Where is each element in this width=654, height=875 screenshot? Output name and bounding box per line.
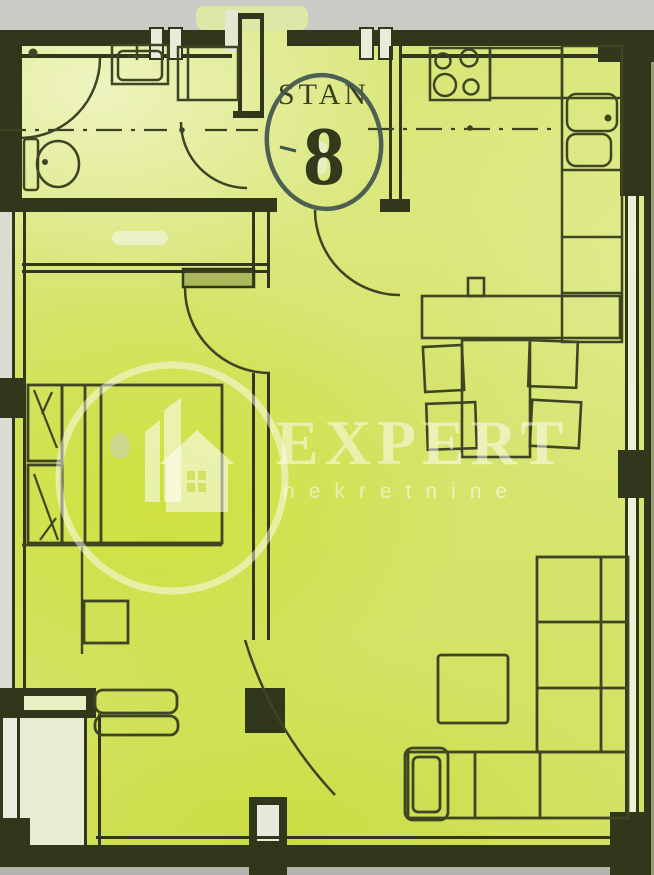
floor-plan-photo: STAN 8 EXPERT nekretnine xyxy=(0,0,654,875)
floor-plan-drawing: STAN 8 EXPERT nekretnine xyxy=(0,0,654,875)
wall-left-pier xyxy=(0,378,26,418)
smudge xyxy=(110,433,130,459)
scan-margin-left xyxy=(0,212,13,690)
coffee-table xyxy=(438,655,508,723)
sideboard xyxy=(422,296,620,338)
toilet-flush-dot xyxy=(42,159,48,165)
watermark-tagline: nekretnine xyxy=(283,480,521,503)
kitchen xyxy=(430,46,622,342)
watermark: EXPERT nekretnine xyxy=(59,365,569,591)
house-body-icon xyxy=(166,464,228,512)
nightstand xyxy=(28,385,62,461)
bedroom-living-wall xyxy=(252,373,255,640)
burner-icon xyxy=(464,80,479,95)
radiator-sill xyxy=(95,690,177,713)
bathroom-door-swing xyxy=(181,122,247,188)
wall-top-left-inner-face xyxy=(8,54,232,58)
chair-icon xyxy=(528,340,578,388)
pen-tick xyxy=(280,147,296,151)
top-opening xyxy=(225,10,238,52)
sofa-armrest xyxy=(405,748,448,820)
scan-margin-bottom xyxy=(0,866,654,875)
burner-icon xyxy=(434,74,456,96)
window-frame xyxy=(636,196,639,450)
wall-right-pier xyxy=(618,450,646,498)
bathroom-right-wall xyxy=(260,13,264,118)
bottom-wall-sill-line xyxy=(96,836,648,839)
wall-hatched-pier xyxy=(0,818,30,848)
watermark-brand: EXPERT xyxy=(276,407,569,478)
lamp-mark xyxy=(34,474,58,540)
smudge xyxy=(112,231,168,245)
kitchen-cabinet-run xyxy=(562,46,622,342)
wall-left-line xyxy=(23,210,26,690)
chair-icon xyxy=(423,345,464,392)
kitchen-left-wall xyxy=(399,46,402,202)
kitchen-sink-icon xyxy=(567,94,617,131)
scan-margin-top xyxy=(0,0,654,30)
wall-left-line xyxy=(12,210,15,690)
window-frame xyxy=(17,717,20,821)
wall-top-left xyxy=(8,30,225,46)
bedroom-door-leaf xyxy=(183,269,254,287)
section-line xyxy=(0,125,560,133)
column xyxy=(468,278,484,296)
unit-number: 8 xyxy=(303,110,345,203)
kitchen-wall-cap xyxy=(380,199,410,212)
window-frame xyxy=(625,196,628,450)
bottom-left-wall xyxy=(84,714,87,845)
sofa-armrest-inner xyxy=(413,757,440,812)
kitchen-left-wall xyxy=(389,46,392,202)
bottom-wall xyxy=(0,845,651,867)
radiator-sill xyxy=(95,716,178,735)
wall-pilaster xyxy=(360,28,373,59)
kitchen-sink-icon xyxy=(567,134,611,166)
bathroom xyxy=(22,44,238,190)
living-room xyxy=(405,557,628,820)
bedroom-door-swing xyxy=(185,288,270,373)
building-bar-icon xyxy=(145,420,160,502)
desk xyxy=(84,601,128,643)
corner-sofa-vertical xyxy=(537,557,628,752)
shower-icon xyxy=(22,58,100,138)
hall-wall xyxy=(267,212,270,288)
wall-left-upper xyxy=(0,30,22,212)
bathroom-bottom-wall xyxy=(0,198,277,212)
living-room-door-swing xyxy=(315,210,400,295)
window-right-1 xyxy=(628,196,636,450)
wall-top-right xyxy=(287,30,648,46)
entrance-door-post-inset xyxy=(257,805,279,841)
wall-top-right-inner-face xyxy=(401,54,622,58)
shower-drain-icon xyxy=(29,49,38,58)
scan-corner-top-right xyxy=(648,0,654,30)
wall-end-cap xyxy=(233,111,264,118)
closet-line xyxy=(22,263,270,266)
wall-right-upper xyxy=(620,46,646,196)
window-frame xyxy=(636,498,639,812)
lamp-mark xyxy=(34,390,57,448)
wall-pilaster xyxy=(169,28,182,59)
faucet-icon xyxy=(605,115,612,122)
window-frame xyxy=(0,717,3,821)
unit-badge: STAN 8 xyxy=(258,68,390,217)
bedroom-window-sill xyxy=(24,696,86,710)
